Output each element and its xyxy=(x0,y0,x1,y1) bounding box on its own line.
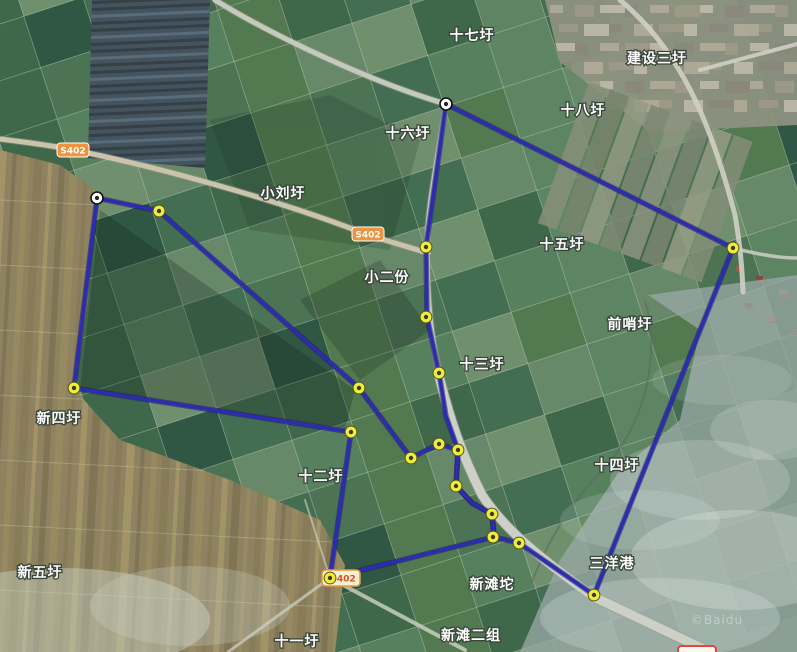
road-badge-red xyxy=(678,646,716,652)
vertex-marker[interactable] xyxy=(345,426,358,439)
place-label: 新滩坨 xyxy=(470,576,515,593)
place-label: 十七圩 xyxy=(450,27,495,44)
vertex-marker[interactable] xyxy=(588,589,601,602)
place-label: 小二份 xyxy=(365,269,410,286)
place-label: 三洋港 xyxy=(590,555,635,572)
place-label: 十四圩 xyxy=(595,457,640,474)
vertex-marker[interactable] xyxy=(433,367,446,380)
start-marker[interactable] xyxy=(439,97,453,111)
vertex-marker[interactable] xyxy=(450,480,463,493)
place-label: 十六圩 xyxy=(386,125,431,142)
vertex-marker[interactable] xyxy=(405,452,418,465)
satellite-map-canvas[interactable]: S402S402S402 十七圩建设三圩十八圩十六圩小刘圩十五圩小二份前哨圩十三… xyxy=(0,0,797,652)
vertex-marker[interactable] xyxy=(353,382,366,395)
vertex-marker[interactable] xyxy=(420,241,433,254)
place-label: 新四圩 xyxy=(37,410,82,427)
map-svg: S402S402S402 十七圩建设三圩十八圩十六圩小刘圩十五圩小二份前哨圩十三… xyxy=(0,0,797,652)
place-label: 十一圩 xyxy=(275,633,320,650)
place-label: 小刘圩 xyxy=(261,185,306,202)
vertex-marker[interactable] xyxy=(727,242,740,255)
place-label: 十三圩 xyxy=(460,356,505,373)
place-label: 十五圩 xyxy=(540,236,585,253)
place-label: 十二圩 xyxy=(299,468,344,485)
vertex-marker[interactable] xyxy=(486,508,499,521)
place-label: 新滩二组 xyxy=(441,627,501,644)
place-label: 建设三圩 xyxy=(627,50,687,67)
place-label: 新五圩 xyxy=(18,564,63,581)
vertex-marker[interactable] xyxy=(433,438,446,451)
baidu-watermark: ©Baidu xyxy=(691,613,743,627)
road-badge-s402: S402 xyxy=(57,143,89,157)
vertex-marker[interactable] xyxy=(153,205,166,218)
vertex-marker[interactable] xyxy=(68,382,81,395)
road-badge-s402: S402 xyxy=(352,227,384,241)
svg-text:S402: S402 xyxy=(355,231,380,241)
start-marker[interactable] xyxy=(90,191,104,205)
vertex-marker[interactable] xyxy=(487,531,500,544)
vertex-marker[interactable] xyxy=(324,572,337,585)
place-label: 前哨圩 xyxy=(608,316,653,333)
svg-text:S402: S402 xyxy=(60,147,85,157)
vertex-marker[interactable] xyxy=(420,311,433,324)
place-label: 十八圩 xyxy=(561,102,606,119)
vertex-marker[interactable] xyxy=(513,537,526,550)
vertex-marker[interactable] xyxy=(452,444,465,457)
